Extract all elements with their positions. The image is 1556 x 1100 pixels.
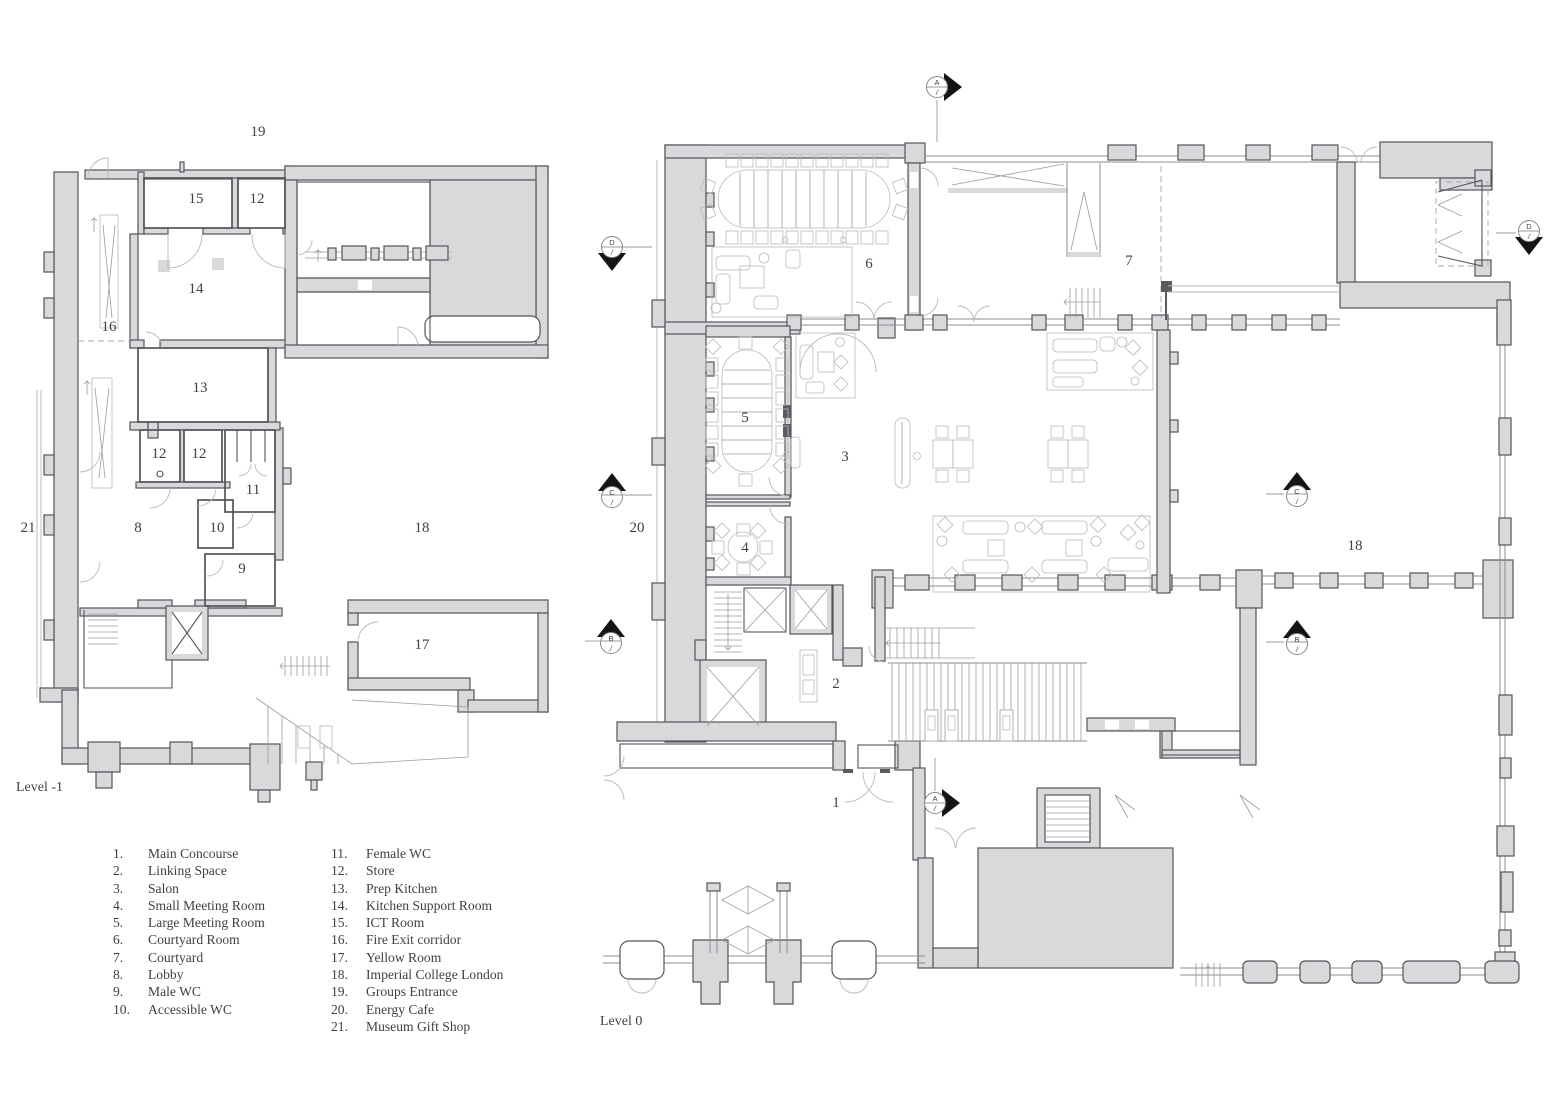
level-0-caption: Level 0 <box>600 1014 642 1030</box>
legend-column-2: 11.Female WC 12.Store 13.Prep Kitchen 14… <box>331 845 503 1035</box>
svg-text:D: D <box>609 238 615 247</box>
legend-item: 20.Energy Cafe <box>331 1001 503 1018</box>
legend-item: 15.ICT Room <box>331 914 503 931</box>
svg-text:A: A <box>934 78 939 87</box>
room-label-16: 16 <box>102 319 118 335</box>
room-label-10: 10 <box>210 520 225 536</box>
room-label-11: 11 <box>246 482 260 498</box>
room-label-12c: 12 <box>192 446 207 462</box>
room-label-14: 14 <box>189 281 205 297</box>
room-label-9: 9 <box>238 561 246 577</box>
section-marker-b-left: B / <box>585 619 625 654</box>
section-marker-b-right: B / <box>1266 620 1311 655</box>
room-label-18-m1: 18 <box>415 520 430 536</box>
svg-text:B: B <box>608 634 613 643</box>
room-label-6: 6 <box>865 256 873 272</box>
legend-item: 9.Male WC <box>113 983 265 1000</box>
room-label-5: 5 <box>741 410 749 426</box>
section-marker-d-left: D / <box>598 237 652 272</box>
room-label-13: 13 <box>193 380 208 396</box>
legend-item: 13.Prep Kitchen <box>331 880 503 897</box>
legend-item: 18.Imperial College London <box>331 966 503 983</box>
level-minus-1-caption: Level -1 <box>16 780 63 796</box>
room-label-21: 21 <box>21 520 36 536</box>
plan-level-minus-1: 19 15 12 14 16 13 12 12 11 21 8 10 18 9 … <box>0 120 580 810</box>
legend-column-1: 1.Main Concourse 2.Linking Space 3.Salon… <box>113 845 265 1018</box>
room-label-18: 18 <box>1348 538 1363 554</box>
legend-item: 10.Accessible WC <box>113 1001 265 1018</box>
room-label-12b: 12 <box>152 446 167 462</box>
plan-level-0: A / D / C / B / B / <box>585 50 1556 1050</box>
section-marker-c-left: C / <box>598 473 652 508</box>
svg-text:C: C <box>609 488 615 497</box>
section-marker-c-right: C / <box>1266 472 1311 507</box>
legend-item: 8.Lobby <box>113 966 265 983</box>
svg-text:A: A <box>932 794 937 803</box>
legend-item: 5.Large Meeting Room <box>113 914 265 931</box>
room-label-20: 20 <box>630 520 645 536</box>
room-label-17: 17 <box>415 637 431 653</box>
legend-item: 16.Fire Exit corridor <box>331 931 503 948</box>
legend-item: 14.Kitchen Support Room <box>331 897 503 914</box>
room-label-15: 15 <box>189 191 204 207</box>
room-label-7: 7 <box>1125 253 1133 269</box>
legend-item: 7.Courtyard <box>113 949 265 966</box>
legend-item: 1.Main Concourse <box>113 845 265 862</box>
room-label-3: 3 <box>841 449 849 465</box>
room-label-1: 1 <box>832 795 840 811</box>
legend-item: 19.Groups Entrance <box>331 983 503 1000</box>
walls-level-minus-1 <box>40 162 548 802</box>
svg-text:B: B <box>1294 635 1299 644</box>
room-label-2: 2 <box>832 676 840 692</box>
legend-item: 12.Store <box>331 862 503 879</box>
section-marker-a-bottom: A / <box>925 758 961 817</box>
legend-item: 17.Yellow Room <box>331 949 503 966</box>
legend-item: 6.Courtyard Room <box>113 931 265 948</box>
legend-item: 11.Female WC <box>331 845 503 862</box>
svg-text:D: D <box>1526 222 1532 231</box>
svg-text:C: C <box>1294 487 1300 496</box>
room-label-19: 19 <box>251 124 266 140</box>
legend-item: 21.Museum Gift Shop <box>331 1018 503 1035</box>
room-label-8: 8 <box>134 520 142 536</box>
floor-plan-sheet: 19 15 12 14 16 13 12 12 11 21 8 10 18 9 … <box>0 0 1556 1100</box>
room-label-4: 4 <box>741 540 749 556</box>
room-label-12a: 12 <box>250 191 265 207</box>
section-marker-a-top: A / <box>927 73 963 142</box>
legend-item: 3.Salon <box>113 880 265 897</box>
section-marker-d-right: D / <box>1496 221 1543 256</box>
legend-item: 4.Small Meeting Room <box>113 897 265 914</box>
legend-item: 2.Linking Space <box>113 862 265 879</box>
room-labels-level-minus-1: 19 15 12 14 16 13 12 12 11 21 8 10 18 9 … <box>21 124 431 653</box>
